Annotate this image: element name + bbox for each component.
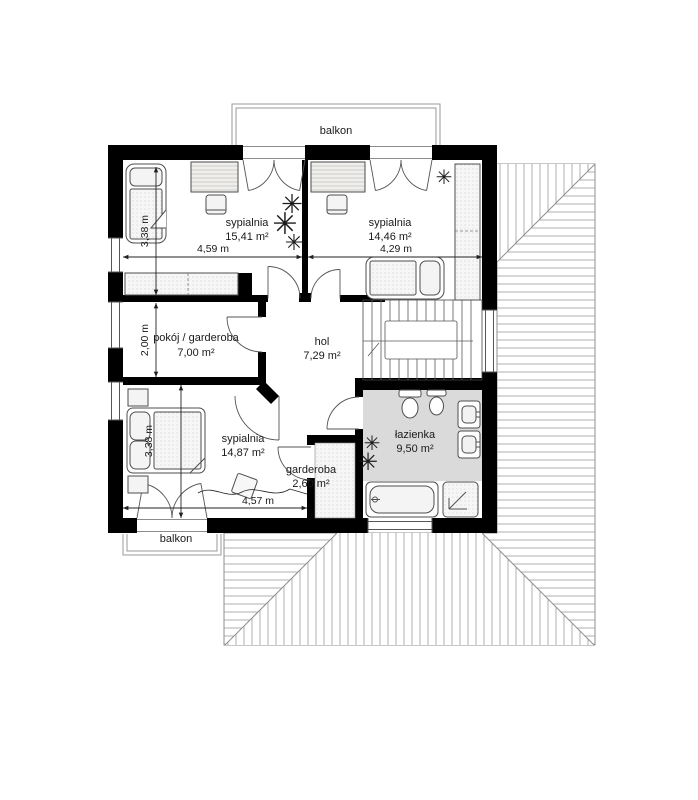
bathtub-icon: [366, 482, 438, 517]
dim-top-right-width: 4,29 m: [380, 243, 412, 255]
dim-bottom-left-height: 3,38 m: [143, 425, 155, 457]
dim-top-left-height: 3,38 m: [139, 215, 151, 247]
desk-icon: [311, 162, 365, 192]
room-label-pokoj-garderoba: pokój / garderoba: [153, 332, 239, 344]
door-bedroom-top-left: [268, 267, 300, 299]
room-label-sypialnia-2: sypialnia: [369, 217, 413, 229]
room-area-sypialnia-3: 14,87 m²: [221, 447, 265, 459]
stairs: [363, 300, 482, 380]
dim-bottom-width: 4,57 m: [242, 495, 274, 507]
room-area-sypialnia-2: 14,46 m²: [368, 231, 412, 243]
bed-icon: [366, 257, 444, 299]
stair-void: [385, 321, 457, 359]
stair-slash: [368, 343, 379, 356]
plant-glyph: ✳: [285, 230, 303, 255]
room-label-sypialnia-3: sypialnia: [222, 433, 266, 445]
window-right-stairs: [482, 310, 497, 372]
plant-glyph: ✳: [436, 167, 453, 189]
plant-glyph: ✳: [358, 449, 378, 476]
desk-icon: [191, 162, 238, 192]
floor-plan: ✳ ✳ ✳ ✳ ✳ ✳ 4,59 m 4,29 m 3,38 m 2,00 m …: [0, 0, 698, 800]
room-area-pokoj-garderoba: 7,00 m²: [177, 347, 215, 359]
sink-icon: [458, 401, 480, 428]
wall-pokoj-east-upper: [258, 302, 266, 317]
wall-garderoba-west-upper: [307, 435, 315, 445]
wall-bath-west-upper: [355, 378, 363, 397]
room-label-sypialnia-1: sypialnia: [226, 217, 270, 229]
window-bottom-bath: [368, 518, 432, 533]
wall-hall-north-left: [123, 295, 268, 302]
dim-top-left-width: 4,59 m: [197, 243, 229, 255]
room-label-garderoba: garderoba: [286, 464, 337, 476]
wall-wardrobe-end: [238, 273, 252, 295]
wardrobe-icon: [125, 273, 238, 295]
nightstand-icon: [128, 389, 148, 406]
room-area-garderoba: 2,60 m²: [292, 478, 330, 490]
door-balcony-top-right: [370, 160, 432, 191]
window-left-3: [108, 382, 123, 420]
wardrobe-icon: [455, 164, 480, 300]
plant-icon: ✳: [436, 167, 453, 189]
balcony-bottom-label: balkon: [160, 533, 192, 545]
door-bedroom-top-right: [311, 270, 340, 299]
chair-icon: [327, 195, 347, 214]
wall-pokoj-south: [123, 377, 266, 385]
room-area-lazienka: 9,50 m²: [396, 443, 434, 455]
wall-garderoba-north: [307, 435, 362, 443]
room-area-sypialnia-1: 15,41 m²: [225, 231, 269, 243]
double-bed-icon: [127, 408, 205, 473]
room-label-lazienka: łazienka: [395, 429, 436, 441]
room-label-hol: hol: [315, 336, 330, 348]
plant-icon: ✳ ✳ ✳: [272, 189, 303, 255]
door-bathroom: [327, 397, 359, 429]
shower-icon: [443, 482, 478, 517]
nightstand-icon: [128, 476, 148, 493]
room-area-hol: 7,29 m²: [303, 350, 341, 362]
wall-bedroom-partition: [302, 160, 308, 295]
window-left-2: [108, 302, 123, 348]
sink-icon: [458, 431, 480, 458]
door-balcony-top-left: [243, 160, 305, 191]
balcony-top-label: balkon: [320, 125, 352, 137]
window-left-1: [108, 238, 123, 272]
dim-middle-left-height: 2,00 m: [139, 324, 151, 356]
chair-icon: [206, 195, 226, 214]
